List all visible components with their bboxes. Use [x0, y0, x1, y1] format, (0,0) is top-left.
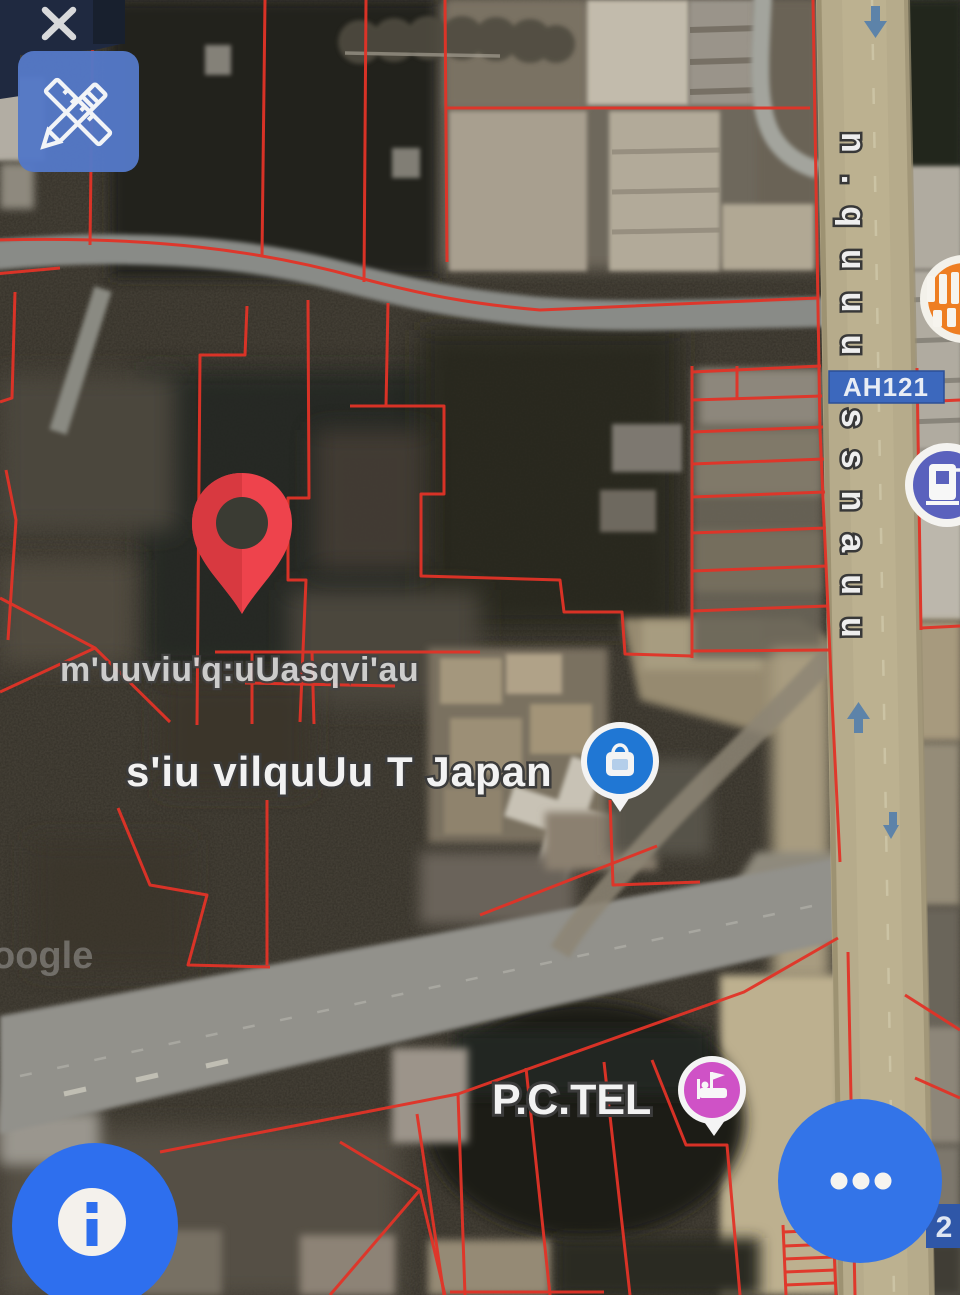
- svg-text:oogle: oogle: [0, 935, 93, 977]
- svg-text:m'uuviu'q:uUasqvi'au: m'uuviu'q:uUasqvi'au: [60, 651, 419, 689]
- svg-text:P.C.TEL: P.C.TEL: [492, 1076, 651, 1124]
- svg-text:AH121: AH121: [843, 372, 929, 402]
- svg-text:s'iu vilquUu T Japan: s'iu vilquUu T Japan: [126, 748, 553, 795]
- svg-text:2: 2: [936, 1211, 953, 1244]
